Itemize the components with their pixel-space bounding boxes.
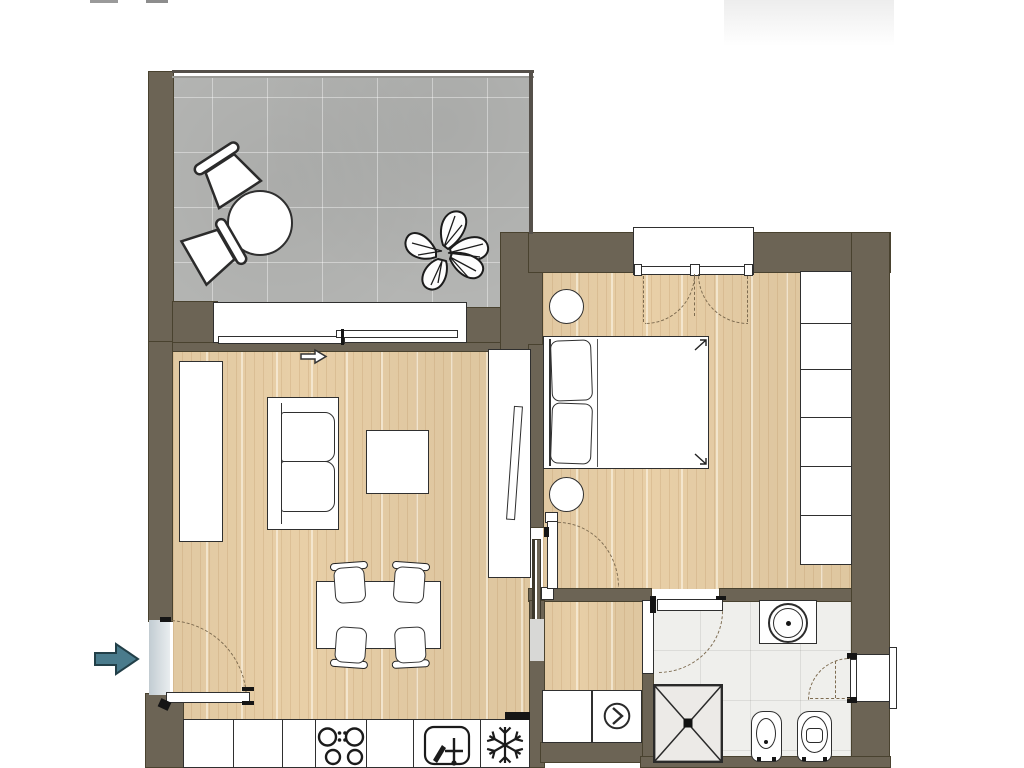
balcony-railing-top-inner (172, 76, 534, 78)
toilet-foot (823, 757, 827, 761)
sliding-panel-right (336, 330, 458, 338)
wardrobe-module (800, 271, 852, 324)
wardrobe-module (800, 466, 852, 516)
bedroom-window-sill (633, 227, 754, 268)
living-left-wall (148, 341, 173, 622)
washbasin-drain (786, 621, 791, 626)
kitchen-counter-segment (366, 719, 414, 768)
living-wall-cabinet (179, 361, 223, 542)
wall-niche (530, 619, 544, 661)
laundry-cabinet (542, 690, 592, 743)
kitchen-cabinet (183, 719, 234, 768)
crop-artifact (90, 0, 118, 3)
coffee-table (366, 430, 429, 494)
bathroom-door-stop (716, 596, 726, 600)
faucet-icon (413, 719, 481, 768)
entrance-door-stop (242, 687, 254, 691)
bathroom-casement-dash (810, 698, 850, 699)
casement-dash-line (747, 276, 748, 322)
chair-seat (334, 626, 367, 664)
floor-plan (0, 0, 1024, 768)
window-mullion (634, 264, 642, 276)
bathroom-door-hinge-mark (650, 596, 656, 613)
casement-dash-line (694, 276, 695, 316)
entrance-door-stop (242, 701, 254, 705)
chair-seat (394, 626, 427, 664)
toilet-seat-opening (806, 728, 823, 743)
laundry-niche-floor (543, 600, 643, 692)
crop-artifact (146, 0, 168, 3)
dining-chair (329, 557, 370, 606)
entrance-door-leaf (166, 692, 250, 703)
bedroom-top-wall-left (528, 232, 634, 273)
dining-chair (389, 557, 430, 606)
pillow (550, 402, 593, 464)
bathroom-window-outer-sill (889, 647, 897, 709)
bidet-bowl (756, 718, 776, 749)
entrance-jamb-mark (160, 617, 171, 622)
round-nightstand (549, 477, 584, 512)
snowflake-freezer-icon (480, 721, 530, 768)
kitchen-counter-segment (282, 719, 316, 768)
entrance-direction-arrow (92, 640, 142, 678)
bidet-drain (764, 740, 768, 744)
shower (653, 684, 723, 763)
round-nightstand (549, 289, 584, 324)
wardrobe-module (800, 323, 852, 371)
wardrobe (800, 272, 852, 572)
sliding-track-mark (341, 329, 344, 345)
bedroom-door-hinge-mark (544, 527, 549, 537)
bidet-foot (757, 757, 761, 761)
bathroom-casement-dash (835, 661, 836, 698)
cooktop-burners-icon (315, 722, 367, 768)
balcony-left-wall (148, 71, 174, 343)
sliding-direction-arrow-icon (299, 347, 329, 365)
niche-bottom-wall (540, 742, 644, 763)
wardrobe-module (800, 369, 852, 418)
bed-blanket-line (597, 339, 598, 467)
bed-corner-mark (693, 338, 709, 352)
dining-chair (329, 625, 370, 674)
crop-artifact (724, 0, 894, 46)
chair-seat (333, 566, 366, 604)
counter-end-mark (505, 712, 530, 720)
monstera-plant (398, 203, 498, 298)
wardrobe-module (800, 417, 852, 467)
pillow (550, 339, 593, 401)
balcony-railing-right (529, 70, 533, 234)
kitchen-cabinet (233, 719, 283, 768)
sliding-panel-left (218, 336, 345, 344)
chair-seat (393, 566, 426, 604)
wardrobe-module (800, 515, 852, 565)
sofa-cushion (281, 461, 335, 512)
washer-drum-icon (603, 702, 631, 730)
bathroom-door-leaf (657, 599, 723, 611)
dining-chair (390, 625, 430, 673)
radiator (532, 539, 541, 624)
bed-corner-mark (693, 452, 709, 466)
sofa-cushion (281, 412, 335, 462)
casement-dash-line (643, 276, 644, 322)
toilet-foot (802, 757, 806, 761)
bidet-foot (772, 757, 776, 761)
balcony-railing-top (172, 70, 534, 73)
bathroom-window-frame (850, 659, 857, 698)
